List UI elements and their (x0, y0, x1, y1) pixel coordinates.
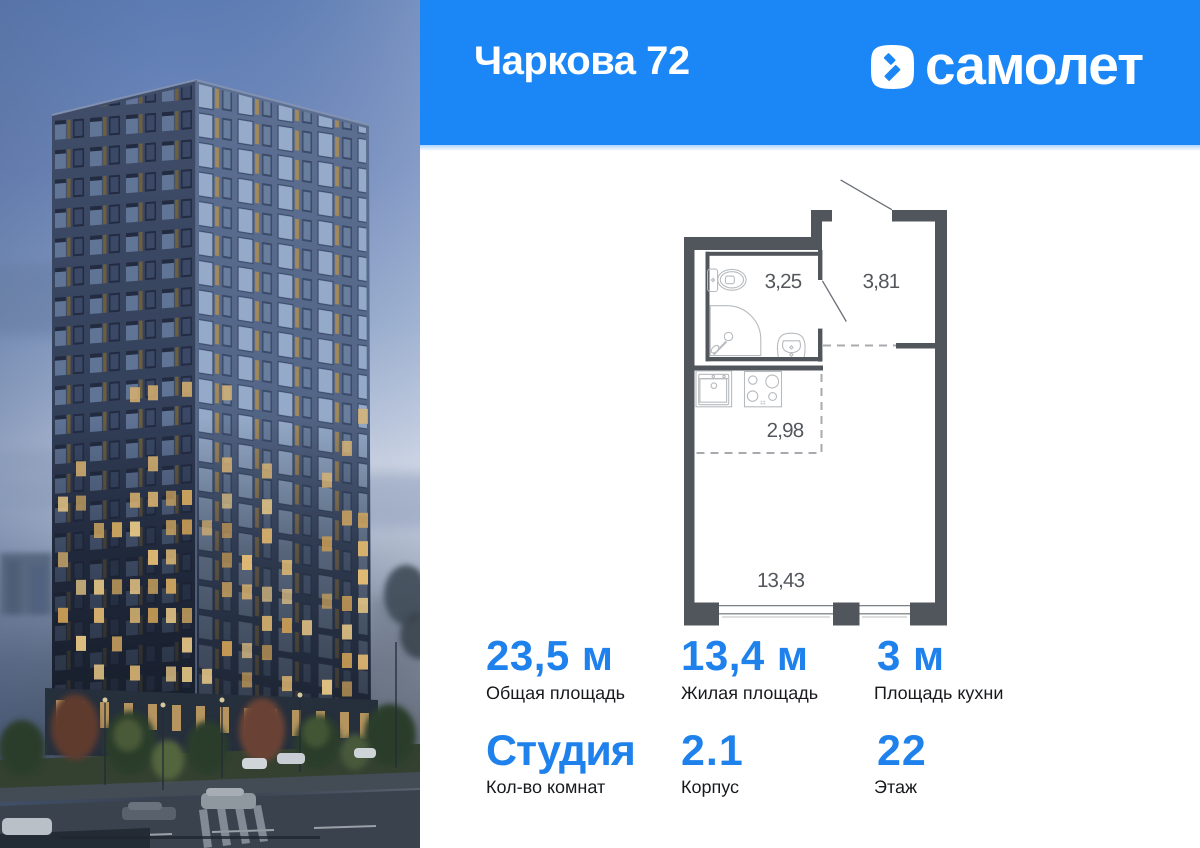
svg-text:2,98: 2,98 (767, 419, 804, 442)
svg-text:3,25: 3,25 (765, 270, 802, 293)
svg-text:самолет: самолет (925, 34, 1143, 96)
svg-text:3,81: 3,81 (863, 270, 900, 293)
svg-text:13,43: 13,43 (757, 569, 805, 592)
